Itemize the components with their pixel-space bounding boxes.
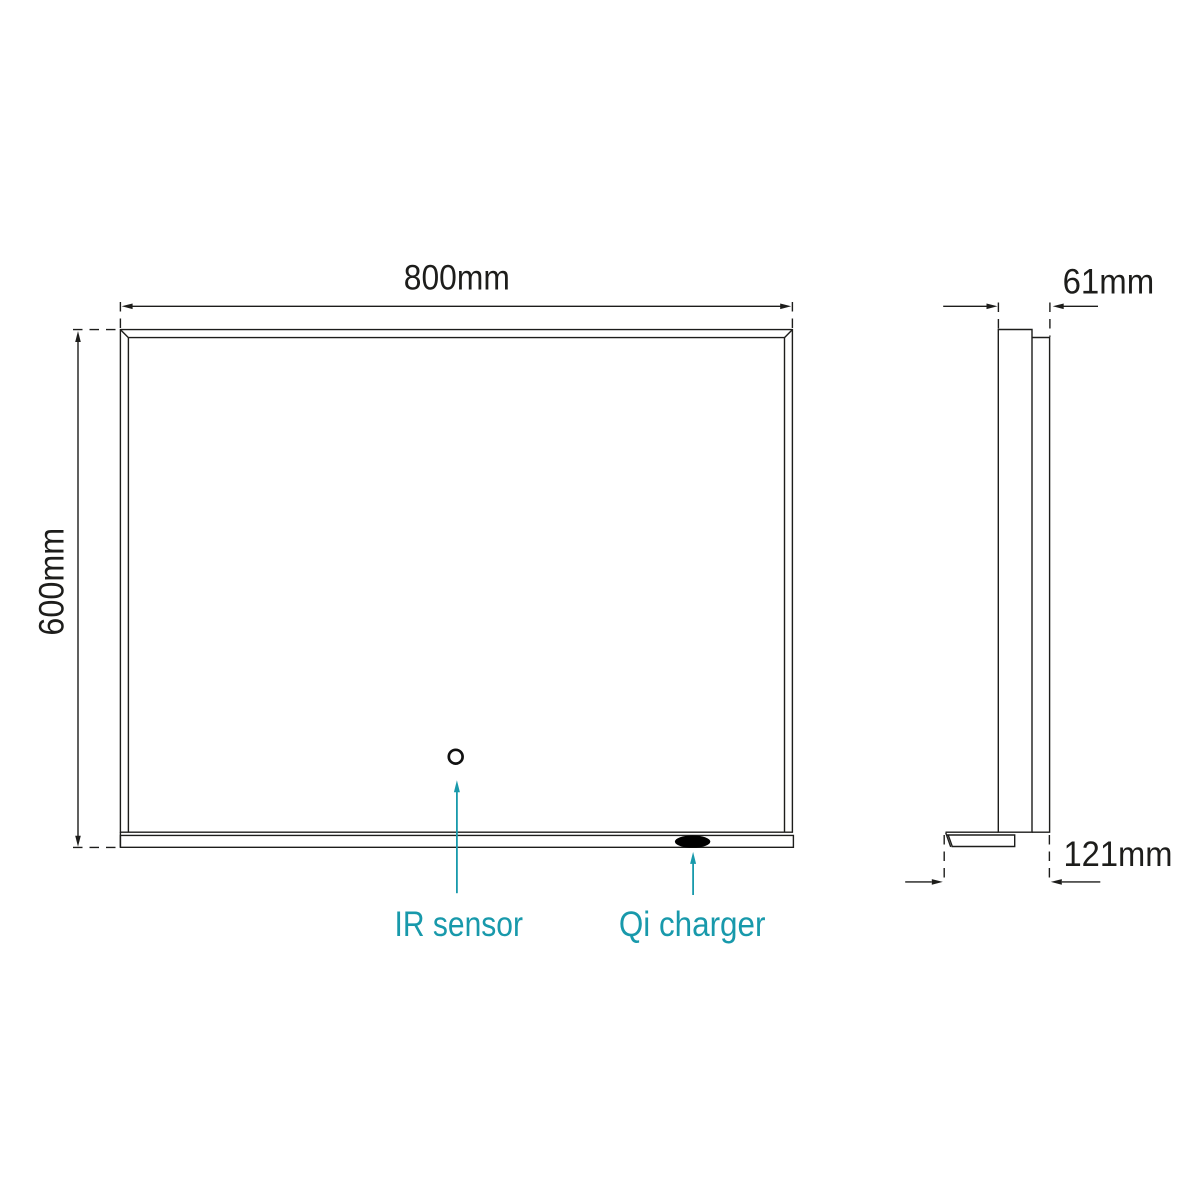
svg-text:800mm: 800mm — [404, 258, 510, 298]
svg-text:600mm: 600mm — [32, 528, 72, 636]
svg-text:IR sensor: IR sensor — [395, 904, 524, 944]
svg-text:Qi charger: Qi charger — [619, 904, 766, 944]
svg-text:61mm: 61mm — [1063, 262, 1155, 302]
svg-text:121mm: 121mm — [1064, 834, 1173, 874]
